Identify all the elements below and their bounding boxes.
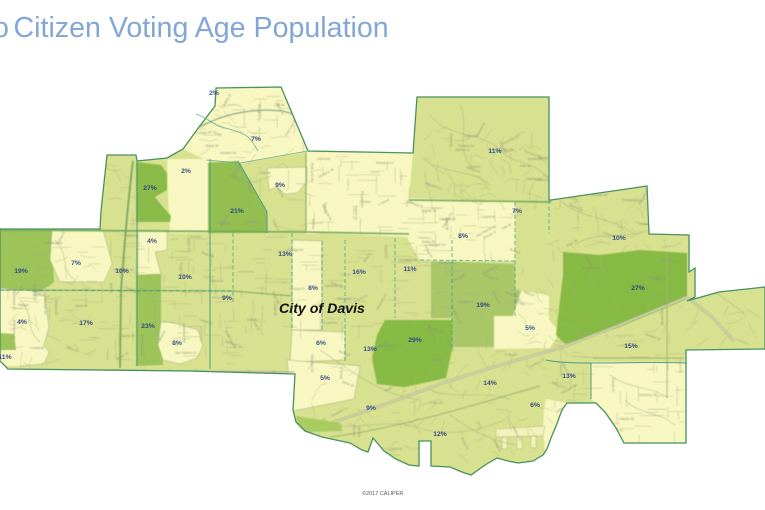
svg-text:F Street: F Street [505,353,517,357]
svg-text:Eighth St: Eighth St [354,206,358,220]
svg-text:11%: 11% [0,354,12,361]
svg-text:Mace Bl: Mace Bl [75,304,87,308]
svg-text:City of Davis: City of Davis [279,301,365,317]
svg-text:Picasso Av: Picasso Av [439,261,456,265]
svg-text:17%: 17% [79,320,93,327]
svg-text:Tercero: Tercero [311,218,315,229]
svg-text:19%: 19% [14,268,28,275]
svg-text:J Street: J Street [430,358,442,362]
svg-text:9%: 9% [366,405,376,412]
svg-text:Tulip Ln: Tulip Ln [323,202,327,214]
svg-text:Colusa Pl: Colusa Pl [638,222,653,226]
svg-text:Mace Bl: Mace Bl [445,218,449,230]
svg-text:Monarch Ln: Monarch Ln [198,103,202,121]
svg-text:19%: 19% [476,302,490,309]
svg-text:Pole Line Rd: Pole Line Rd [310,163,314,183]
svg-text:7%: 7% [251,136,261,143]
svg-text:Orchard Rd: Orchard Rd [660,308,664,326]
svg-text:Monarch Ln: Monarch Ln [661,259,679,263]
svg-text:F Street: F Street [339,367,343,379]
svg-text:Amador Av: Amador Av [220,151,237,155]
svg-text:Monarch Ln: Monarch Ln [582,266,600,270]
svg-text:6%: 6% [316,340,326,347]
svg-text:2%: 2% [181,168,191,175]
svg-text:27%: 27% [143,185,157,192]
svg-text:Villanova Dr: Villanova Dr [310,354,314,373]
svg-text:Hanover Dr: Hanover Dr [428,243,446,247]
svg-text:4%: 4% [17,319,27,326]
svg-text:F Street: F Street [670,195,683,204]
svg-text:10%: 10% [612,235,626,242]
svg-text:13%: 13% [278,251,292,258]
svg-text:Glacier Dr: Glacier Dr [120,334,136,338]
svg-text:Monarch Ln: Monarch Ln [565,416,577,434]
svg-text:Cowell Bl: Cowell Bl [273,301,277,315]
svg-text:Bianco: Bianco [109,283,113,293]
svg-text:Picasso Av: Picasso Av [458,144,475,148]
svg-text:Colusa Pl: Colusa Pl [196,131,211,135]
svg-text:Arthur St: Arthur St [648,275,661,279]
svg-text:Cowell Bl: Cowell Bl [388,447,402,451]
svg-text:Eighth St: Eighth St [422,209,436,213]
svg-text:8%: 8% [308,285,318,292]
svg-text:2%: 2% [209,90,219,97]
svg-text:13%: 13% [562,373,576,380]
svg-text:5%: 5% [525,325,535,332]
svg-text:Tulip Ln: Tulip Ln [430,401,442,405]
svg-text:7%: 7% [512,208,522,215]
svg-text:Danbury St: Danbury St [379,344,396,348]
svg-text:Catalina Dr: Catalina Dr [525,177,543,181]
svg-text:23%: 23% [141,323,155,330]
svg-text:4%: 4% [147,238,157,245]
svg-text:12%: 12% [433,431,447,438]
svg-text:Regis Dr: Regis Dr [384,245,388,259]
svg-text:Tercero: Tercero [469,165,480,169]
svg-text:Tercero: Tercero [246,220,257,224]
svg-text:Cowell Bl: Cowell Bl [323,321,337,325]
svg-text:9%: 9% [222,295,232,302]
svg-text:Eighth St: Eighth St [566,424,580,428]
svg-text:Tercero: Tercero [352,425,356,436]
svg-text:Cowell Bl: Cowell Bl [481,215,495,219]
svg-text:Anderson Rd: Anderson Rd [182,323,186,343]
svg-text:Oak Av: Oak Av [274,103,285,107]
svg-text:13%: 13% [363,346,377,353]
svg-text:Sierra Av: Sierra Av [210,279,224,283]
svg-text:Monarch Ln: Monarch Ln [257,104,261,122]
svg-text:El Macero Dr: El Macero Dr [12,320,16,341]
svg-text:o: o [0,12,9,44]
svg-text:8%: 8% [172,340,182,347]
svg-text:El Macero Dr: El Macero Dr [656,205,677,209]
svg-text:6%: 6% [530,402,540,409]
svg-text:Glacier Dr: Glacier Dr [619,417,635,421]
svg-text:11%: 11% [403,266,416,273]
svg-text:Cowell Bl: Cowell Bl [30,346,44,350]
svg-text:7%: 7% [71,260,81,267]
svg-text:9%: 9% [275,182,285,189]
svg-text:Bianco: Bianco [18,303,28,307]
svg-text:8%: 8% [458,233,468,240]
svg-text:©2017 CALIPER: ©2017 CALIPER [362,490,403,497]
svg-text:San Marino Dr: San Marino Dr [175,351,198,355]
svg-text:Monarch Ln: Monarch Ln [622,198,640,202]
svg-text:Davis St: Davis St [449,134,453,147]
svg-text:27%: 27% [631,285,645,292]
svg-text:16%: 16% [352,269,366,276]
svg-text:Oak Av: Oak Av [260,171,271,175]
svg-text:Danbury St: Danbury St [639,393,656,397]
svg-text:5%: 5% [320,375,330,382]
svg-text:Regis Dr: Regis Dr [187,238,191,252]
svg-text:10%: 10% [178,274,192,281]
svg-text:Hanover Dr: Hanover Dr [43,297,47,315]
svg-text:11%: 11% [488,148,501,155]
svg-text:Drexel Dr: Drexel Dr [611,378,615,393]
svg-text:Glacier Dr: Glacier Dr [54,300,58,316]
svg-text:15%: 15% [624,343,638,350]
svg-text:14%: 14% [483,380,497,387]
svg-text:29%: 29% [408,337,422,344]
svg-text:21%: 21% [230,208,244,215]
svg-text:Oak Av: Oak Av [520,164,531,168]
svg-text:Alvarado Av: Alvarado Av [399,258,417,262]
svg-text:Picasso Av: Picasso Av [360,191,364,208]
svg-text:Tercero: Tercero [357,426,361,437]
svg-text:10%: 10% [115,268,129,275]
svg-text:Citizen Voting Age Population: Citizen Voting Age Population [14,12,389,44]
svg-text:Sierra Av: Sierra Av [317,157,331,161]
svg-text:Marina Cr: Marina Cr [455,148,471,152]
svg-text:Catalina Dr: Catalina Dr [457,300,475,304]
svg-text:Mace Bl: Mace Bl [206,144,218,148]
svg-text:Drummond Av: Drummond Av [140,335,144,357]
svg-text:Monarch Ln: Monarch Ln [376,161,394,165]
